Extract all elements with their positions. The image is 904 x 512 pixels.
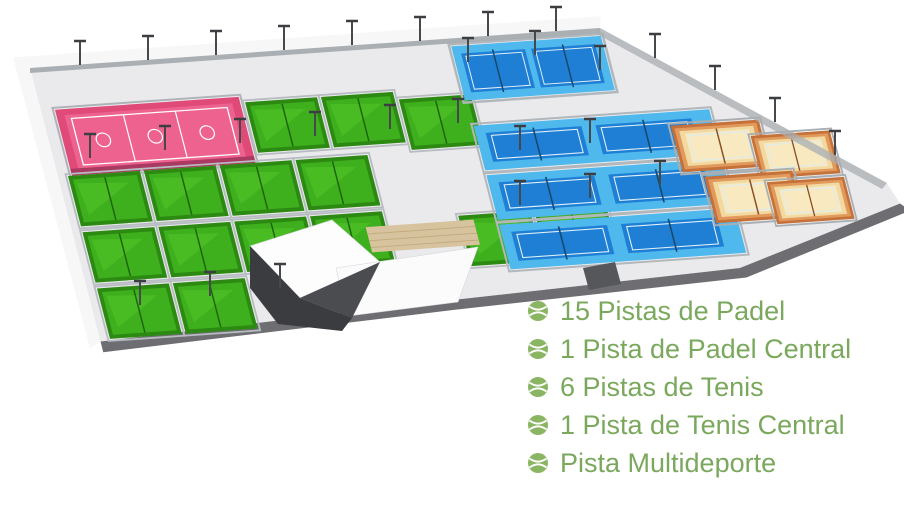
legend-item: Pista Multideporte [527,444,851,482]
tennis-ball-icon [527,300,549,322]
tennis-ball-icon [527,338,549,360]
legend-item: 15 Pistas de Padel [527,292,851,330]
legend-item: 1 Pista de Padel Central [527,330,851,368]
legend-item-label: 6 Pistas de Tenis [560,374,764,401]
tennis-ball-icon [527,414,549,436]
legend-item-label: 1 Pista de Tenis Central [560,412,845,439]
legend-item-label: 1 Pista de Padel Central [560,336,851,363]
legend-item: 1 Pista de Tenis Central [527,406,851,444]
legend: 15 Pistas de Padel 1 Pista de Padel Cent… [527,292,851,482]
tennis-ball-icon [527,452,549,474]
facility-plan: 15 Pistas de Padel 1 Pista de Padel Cent… [0,0,904,512]
legend-item-label: 15 Pistas de Padel [560,298,785,325]
clay-court [764,175,856,226]
legend-item: 6 Pistas de Tenis [527,368,851,406]
legend-item-label: Pista Multideporte [560,450,776,477]
tennis-ball-icon [527,376,549,398]
